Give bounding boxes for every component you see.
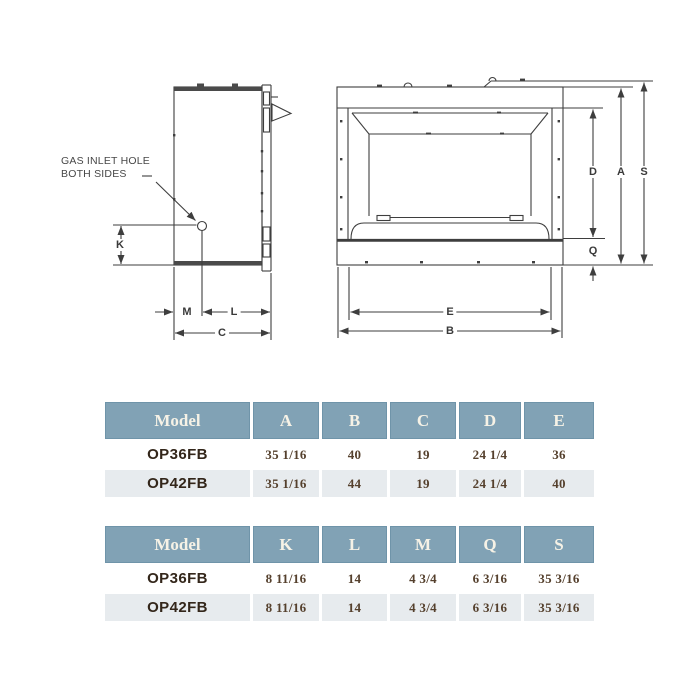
gas-inlet-note-line1: GAS INLET HOLE [61, 155, 150, 168]
value-cell: 14 [322, 594, 387, 621]
col-header-c: C [390, 402, 456, 439]
value-cell: 40 [322, 441, 387, 468]
gas-inlet-hole [198, 222, 207, 231]
fireplace-spec-sheet: GAS INLET HOLE BOTH SIDES K M L C D A S … [0, 0, 700, 700]
model-cell: OP36FB [105, 565, 250, 592]
col-header-a: A [253, 402, 319, 439]
col-header-model: Model [105, 526, 250, 563]
value-cell: 44 [322, 470, 387, 497]
value-cell: 19 [390, 441, 456, 468]
model-cell: OP42FB [105, 470, 250, 497]
value-cell: 8 11/16 [253, 565, 319, 592]
value-cell: 35 3/16 [524, 565, 594, 592]
value-cell: 4 3/4 [390, 594, 456, 621]
model-cell: OP36FB [105, 441, 250, 468]
dimensions-table-klmqs: Model K L M Q S OP36FB 8 11/16 14 4 3/4 … [105, 526, 594, 621]
dim-label-a: A [614, 166, 628, 178]
gas-inlet-note-line2: BOTH SIDES [61, 168, 150, 181]
value-cell: 35 1/16 [253, 441, 319, 468]
front-view-drawing [337, 78, 653, 339]
model-cell: OP42FB [105, 594, 250, 621]
col-header-b: B [322, 402, 387, 439]
dim-label-e: E [443, 306, 456, 318]
dim-label-s: S [637, 166, 650, 178]
col-header-d: D [459, 402, 521, 439]
col-header-k: K [253, 526, 319, 563]
value-cell: 6 3/16 [459, 565, 521, 592]
value-cell: 4 3/4 [390, 565, 456, 592]
dim-label-d: D [586, 166, 600, 178]
value-cell: 35 1/16 [253, 470, 319, 497]
value-cell: 40 [524, 470, 594, 497]
fireplace-dimension-diagram [0, 0, 700, 370]
col-header-m: M [390, 526, 456, 563]
value-cell: 6 3/16 [459, 594, 521, 621]
dim-label-k: K [113, 239, 127, 251]
dim-label-b: B [443, 325, 457, 337]
gas-inlet-note: GAS INLET HOLE BOTH SIDES [61, 155, 150, 180]
value-cell: 14 [322, 565, 387, 592]
value-cell: 24 1/4 [459, 441, 521, 468]
value-cell: 24 1/4 [459, 470, 521, 497]
dim-label-c: C [215, 327, 229, 339]
col-header-q: Q [459, 526, 521, 563]
value-cell: 8 11/16 [253, 594, 319, 621]
col-header-s: S [524, 526, 594, 563]
value-cell: 36 [524, 441, 594, 468]
col-header-e: E [524, 402, 594, 439]
col-header-l: L [322, 526, 387, 563]
side-view-drawing [113, 84, 291, 341]
dim-label-l: L [228, 306, 241, 318]
dimensions-table-abcde: Model A B C D E OP36FB 35 1/16 40 19 24 … [105, 402, 594, 497]
dim-label-m: M [179, 306, 194, 318]
dim-label-q: Q [586, 245, 601, 257]
value-cell: 35 3/16 [524, 594, 594, 621]
col-header-model: Model [105, 402, 250, 439]
value-cell: 19 [390, 470, 456, 497]
